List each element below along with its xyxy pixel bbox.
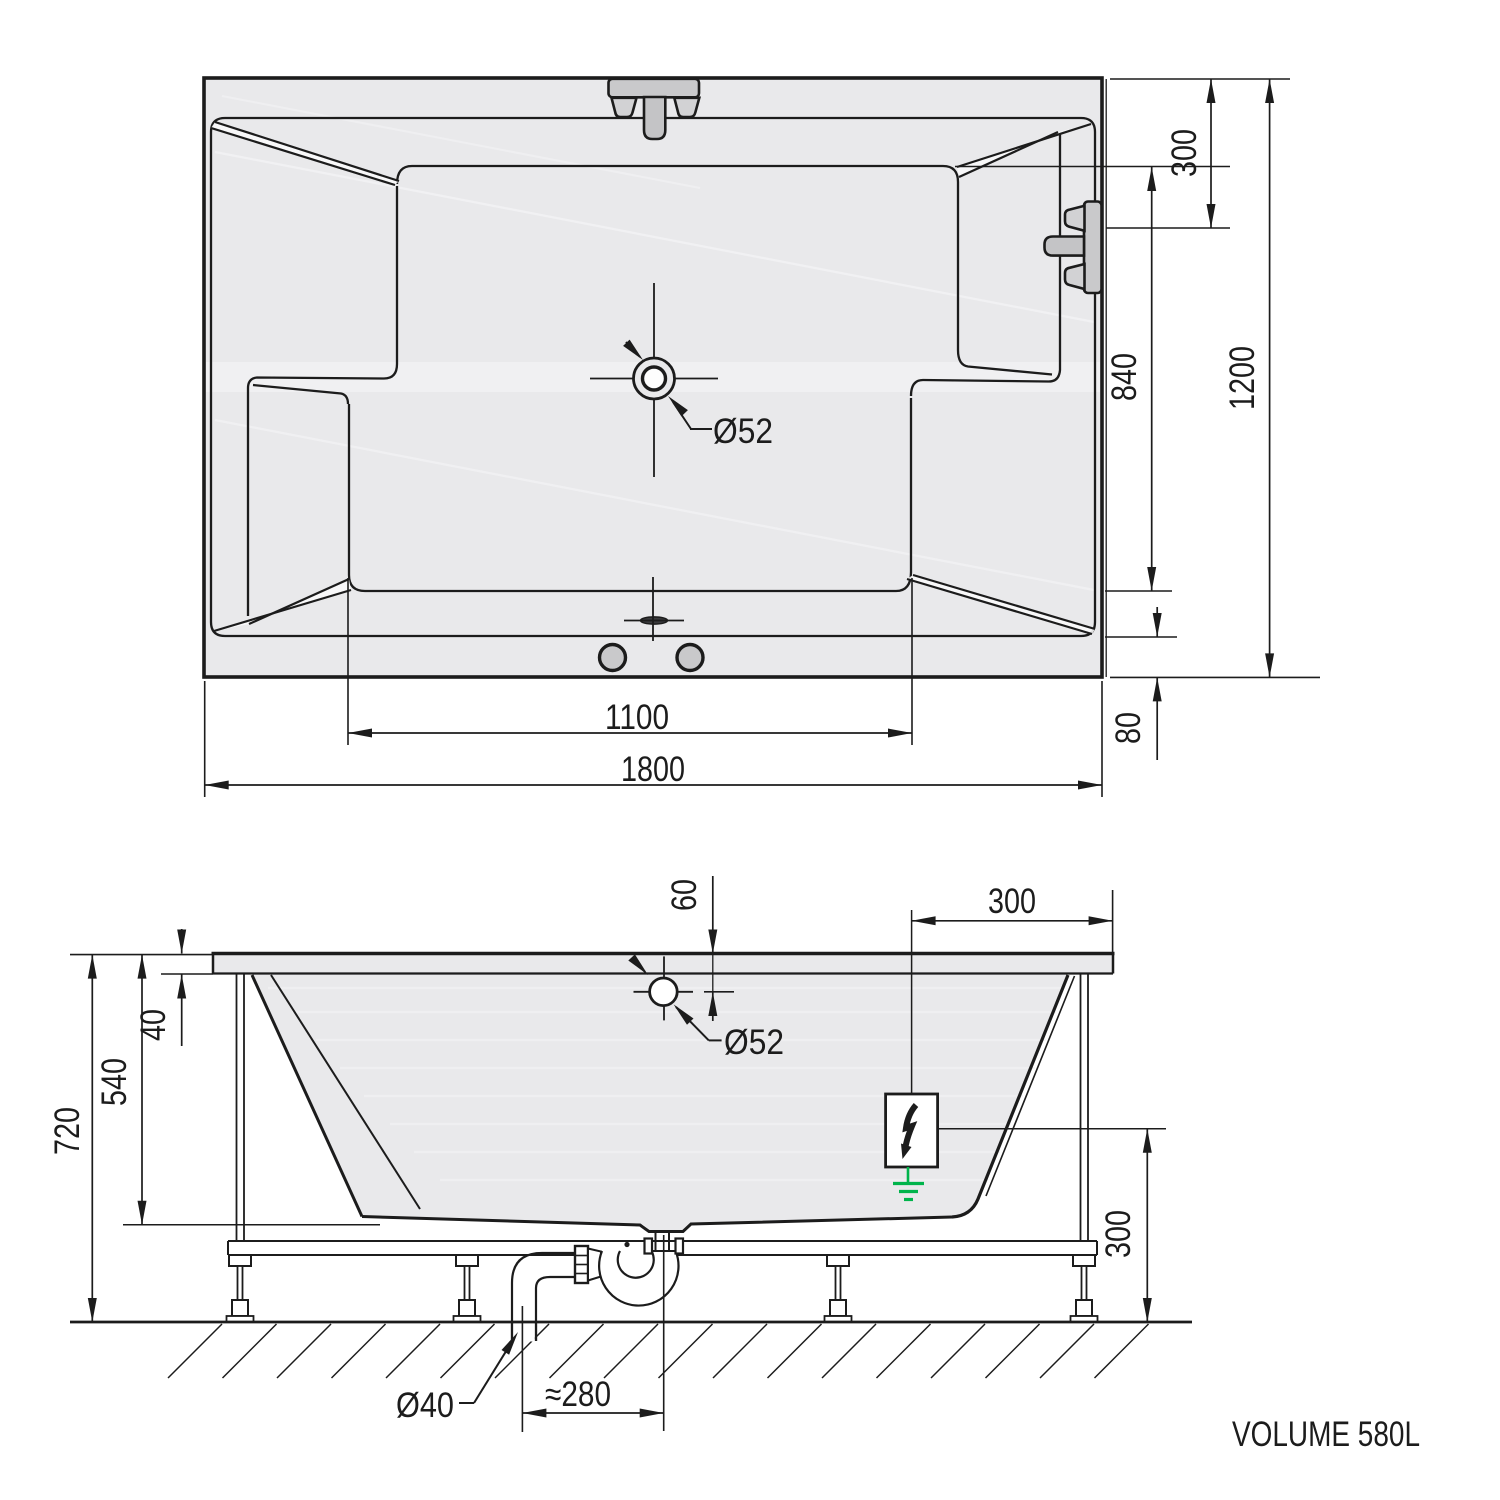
svg-text:40: 40: [134, 1009, 173, 1041]
svg-text:540: 540: [95, 1058, 134, 1106]
svg-text:300: 300: [988, 882, 1036, 921]
svg-text:1200: 1200: [1223, 346, 1262, 410]
svg-text:80: 80: [1109, 712, 1148, 744]
svg-text:Ø52: Ø52: [713, 412, 773, 451]
svg-text:60: 60: [665, 879, 704, 911]
svg-text:1100: 1100: [605, 698, 669, 737]
svg-text:300: 300: [1165, 129, 1204, 177]
svg-text:Ø40: Ø40: [396, 1386, 454, 1425]
svg-text:VOLUME 580L: VOLUME 580L: [1232, 1414, 1420, 1454]
svg-text:Ø52: Ø52: [724, 1023, 784, 1062]
svg-text:1800: 1800: [621, 750, 685, 789]
svg-text:300: 300: [1099, 1210, 1138, 1258]
svg-text:720: 720: [48, 1107, 87, 1155]
svg-text:≈280: ≈280: [545, 1375, 611, 1414]
svg-text:840: 840: [1105, 353, 1144, 401]
